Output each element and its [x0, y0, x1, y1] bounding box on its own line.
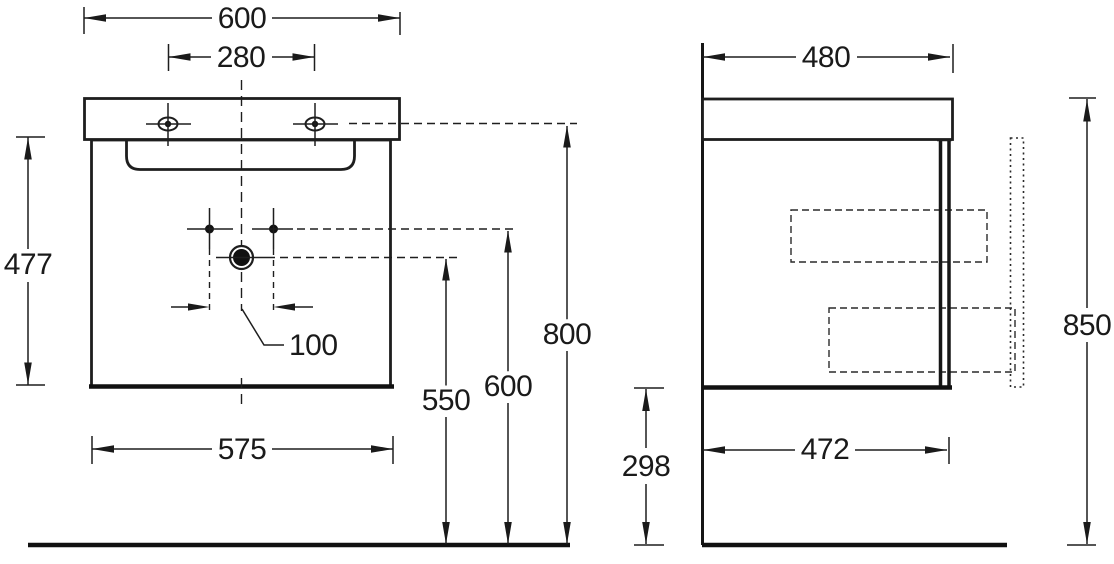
- dim-side-height: 477: [4, 137, 53, 385]
- dim-faucet-spacing: 280: [169, 41, 315, 74]
- basin-top-side: [703, 99, 953, 140]
- extension-dashed-lines: [267, 124, 577, 258]
- dim-label-drain-offset: 100: [289, 329, 338, 362]
- vanity-dimension-drawing: 600 280 477 100 575 550 600 800: [0, 0, 1114, 564]
- dim-label-top-width: 600: [218, 2, 267, 35]
- door-handle-profile: [1011, 138, 1024, 387]
- dim-label-fixing-height: 600: [484, 370, 533, 403]
- hidden-detail-upper: [791, 210, 987, 262]
- leader-line: [242, 309, 284, 345]
- dim-top-width: 600: [84, 2, 400, 35]
- dim-label-top-depth: 480: [802, 41, 851, 74]
- technical-drawing-sheet: 600 280 477 100 575 550 600 800: [0, 0, 1114, 564]
- dim-label-faucet-spacing: 280: [217, 41, 266, 74]
- hidden-detail-lower: [829, 308, 1015, 372]
- side-view: [702, 43, 1024, 545]
- dim-label-rim-height: 800: [543, 318, 592, 351]
- drain-hole: [216, 246, 267, 269]
- dim-label-bottom-depth: 472: [801, 433, 850, 466]
- dim-label-bottom-width: 575: [218, 433, 267, 466]
- dim-bottom-width: 575: [92, 433, 393, 466]
- dim-bottom-depth: 472: [703, 433, 949, 466]
- dim-label-under-clearance: 298: [622, 450, 671, 483]
- dim-fixing-height: 600: [484, 231, 533, 545]
- dim-rim-height: 800: [543, 126, 592, 545]
- dim-label-side-height: 477: [4, 248, 53, 281]
- fixing-dots: [187, 208, 293, 249]
- dim-drain-offset: 100: [171, 303, 338, 362]
- dim-drain-height: 550: [422, 259, 471, 545]
- dim-overall-height: 850: [1063, 98, 1112, 545]
- fixing-dot-crosshairs: [187, 208, 293, 249]
- dim-top-depth: 480: [703, 41, 953, 74]
- bowl-outline: [127, 140, 355, 170]
- dim-label-drain-height: 550: [422, 384, 471, 417]
- front-view: [28, 80, 577, 545]
- door-panel-side: [941, 141, 950, 386]
- dim-label-overall-height: 850: [1063, 309, 1112, 342]
- dim-under-clearance: 298: [622, 388, 671, 545]
